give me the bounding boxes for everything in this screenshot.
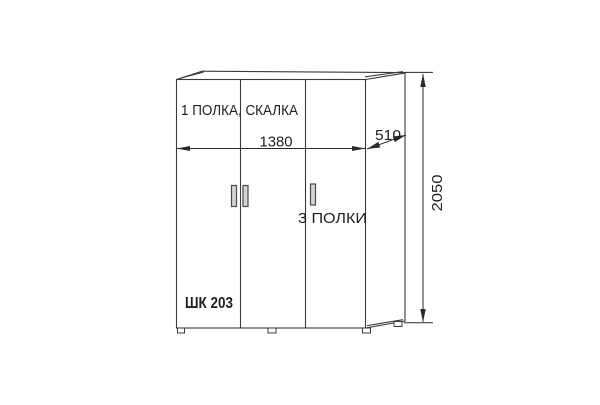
foot	[178, 328, 185, 333]
height-dimension-label: 2050	[429, 175, 446, 212]
height-dimension: 2050	[404, 72, 446, 322]
foot	[268, 328, 276, 333]
right-section-note: 3 ПОЛКИ	[298, 210, 367, 227]
arrowhead-left-icon	[177, 146, 191, 151]
arrowhead-right-icon	[352, 146, 366, 151]
foot	[394, 322, 402, 327]
top-section-note: 1 ПОЛКА, СКАЛКА	[181, 102, 298, 119]
depth-dimension-label: 510	[375, 127, 401, 144]
width-dimension-label: 1380	[260, 134, 293, 151]
top-panel-edge	[181, 72, 203, 78]
door-handle	[232, 186, 237, 207]
door-handle	[311, 184, 316, 205]
arrowhead-up-icon	[420, 74, 425, 88]
wardrobe-technical-drawing: 1380 510 2050 1 ПОЛКА, СКАЛКА 3 ПОЛКИ ШК…	[0, 0, 600, 405]
product-code-label: ШК 203	[185, 295, 233, 312]
foot	[363, 328, 371, 333]
arrowhead-down-icon	[420, 309, 425, 323]
top-panel-back-edge	[203, 71, 405, 72]
door-handles	[232, 184, 316, 207]
furniture-diagram: 1380 510 2050 1 ПОЛКА, СКАЛКА 3 ПОЛКИ ШК…	[0, 0, 600, 405]
door-handle	[243, 186, 248, 207]
depth-dimension: 510	[367, 127, 406, 149]
width-dimension: 1380	[177, 134, 366, 152]
